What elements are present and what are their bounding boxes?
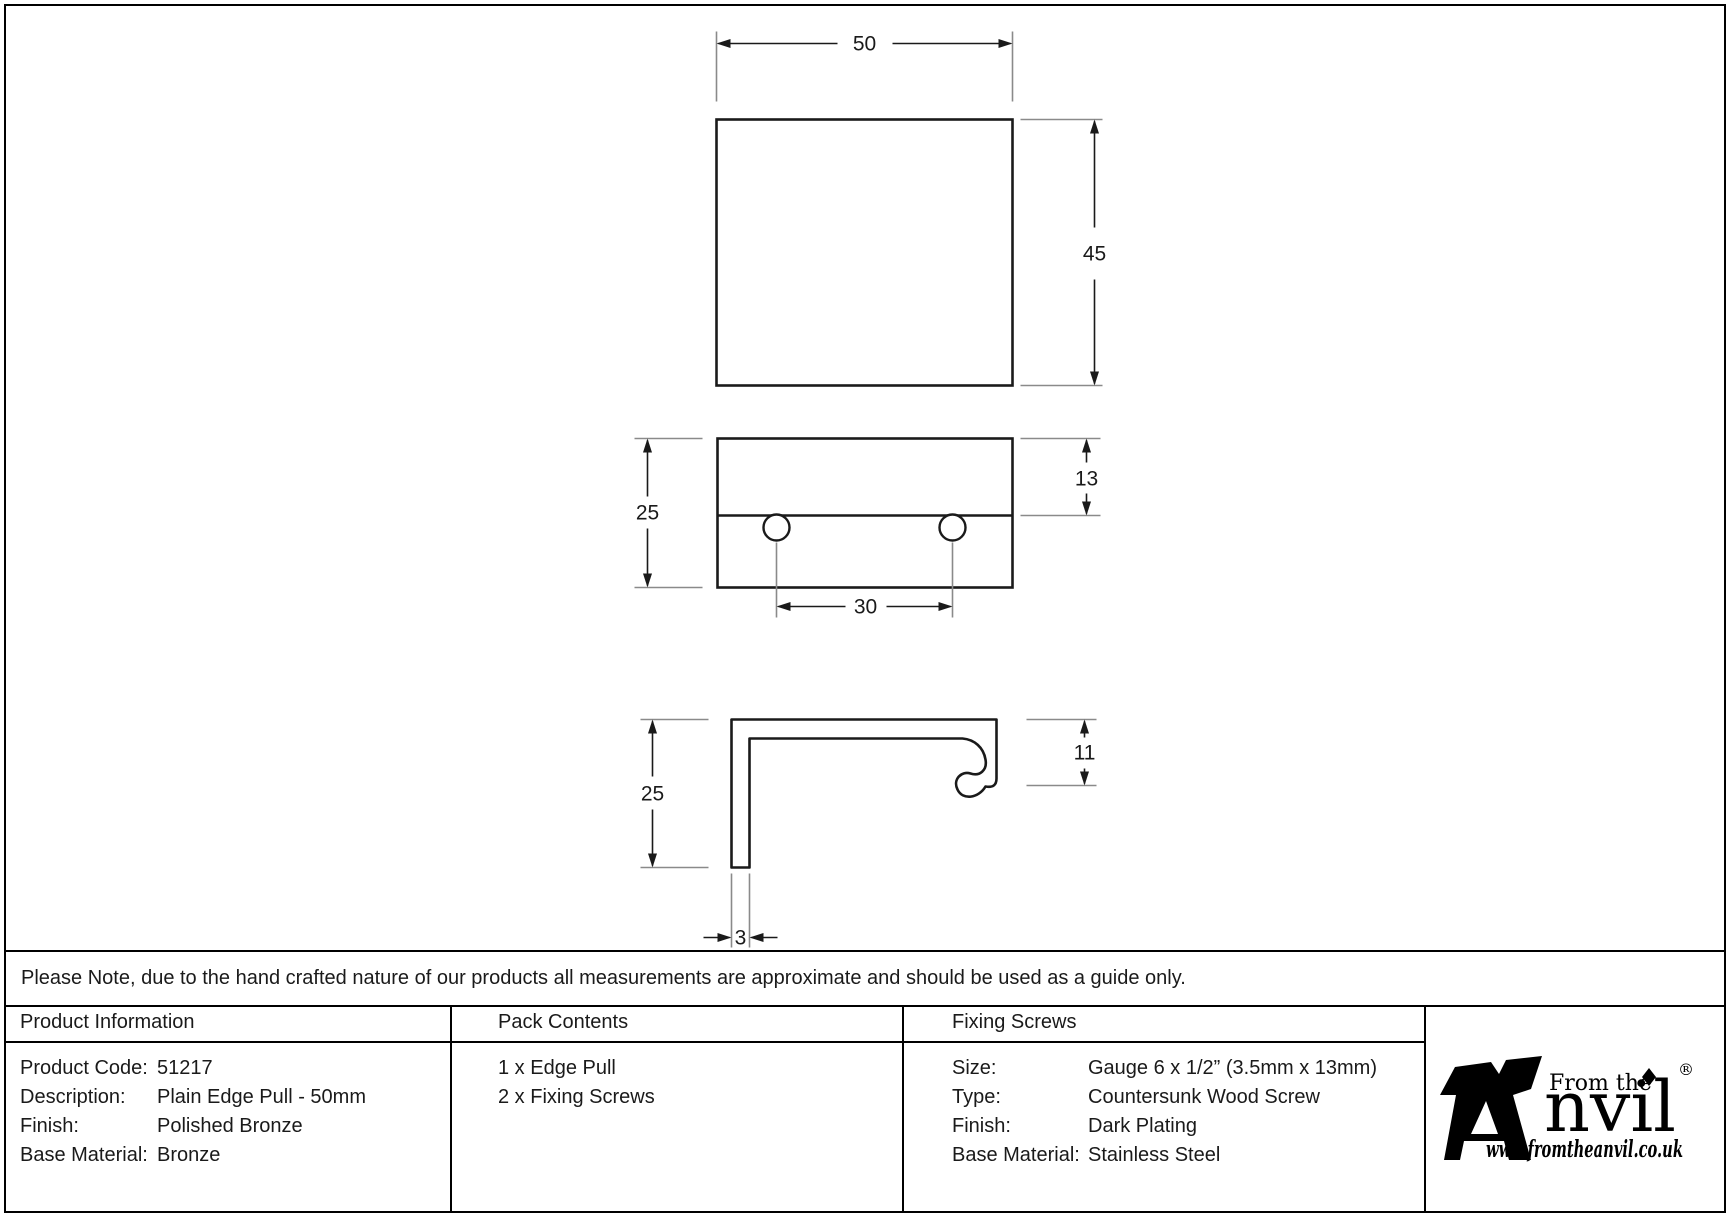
arrowhead — [718, 933, 732, 942]
table-row: Finish: Polished Bronze — [20, 1112, 450, 1141]
anvil-logo-graphic: From the nvil ® www.fromtheanvil.co.uk — [1426, 1005, 1721, 1212]
front-view-outline — [718, 439, 1013, 588]
from-the-anvil-logo: From the nvil ® www.fromtheanvil.co.uk — [1426, 1005, 1724, 1212]
table-row: Description: Plain Edge Pull - 50mm — [20, 1083, 450, 1112]
item-text: 1 x Edge Pull — [498, 1057, 616, 1080]
row-value: Plain Edge Pull - 50mm — [157, 1086, 366, 1109]
arrowhead — [648, 854, 657, 868]
dimension-lip-11: 11 — [1027, 720, 1097, 786]
row-label: Description: — [20, 1086, 157, 1109]
dim-label-25: 25 — [636, 502, 659, 525]
arrowhead — [939, 602, 953, 611]
registered-mark: ® — [1678, 1060, 1694, 1079]
arrowhead — [777, 602, 791, 611]
product-information-body: Product Code: 51217 Description: Plain E… — [6, 1043, 450, 1170]
arrowhead — [1090, 120, 1099, 134]
row-value: Bronze — [157, 1144, 220, 1167]
dim-label-side-25: 25 — [641, 783, 664, 806]
side-view: 25 11 3 — [641, 720, 1097, 950]
table-row: Base Material: Bronze — [20, 1141, 450, 1170]
table-row: Product Code: 51217 — [20, 1054, 450, 1083]
row-value: Stainless Steel — [1088, 1144, 1220, 1167]
dimension-width-50: 50 — [717, 32, 1013, 102]
list-item: 1 x Edge Pull — [498, 1054, 902, 1083]
arrowhead — [1082, 439, 1091, 453]
dimension-height-45: 45 — [1021, 120, 1107, 386]
row-label: Finish: — [20, 1115, 157, 1138]
row-label: Base Material: — [20, 1144, 157, 1167]
header-label: Product Information — [20, 1011, 195, 1034]
row-value: Polished Bronze — [157, 1115, 303, 1138]
arrowhead — [643, 439, 652, 453]
row-value: 51217 — [157, 1057, 213, 1080]
arrowhead — [643, 574, 652, 588]
measurement-note: Please Note, due to the hand crafted nat… — [6, 950, 1724, 1007]
table-row: Type: Countersunk Wood Screw — [952, 1083, 1424, 1112]
arrowhead — [648, 720, 657, 734]
arrowhead — [999, 39, 1013, 48]
dimension-height-25: 25 — [635, 439, 703, 588]
row-label: Size: — [952, 1057, 1088, 1080]
brand-logo-cell: From the nvil ® www.fromtheanvil.co.uk — [1426, 1005, 1724, 1212]
side-profile-outline — [732, 720, 997, 868]
top-view: 50 45 — [717, 32, 1107, 386]
arrowhead — [717, 39, 731, 48]
dim-label-11: 11 — [1074, 742, 1096, 765]
screw-hole-right — [940, 515, 966, 541]
row-label: Finish: — [952, 1115, 1088, 1138]
dimension-top-section-13: 13 — [1021, 439, 1101, 516]
dim-label-45: 45 — [1083, 243, 1106, 266]
arrowhead — [1080, 720, 1089, 734]
row-label: Base Material: — [952, 1144, 1088, 1167]
header-label: Pack Contents — [498, 1011, 628, 1034]
dimension-thickness-3: 3 — [704, 874, 778, 950]
arrowhead — [1082, 502, 1091, 516]
product-information-column: Product Information Product Code: 51217 … — [6, 1005, 452, 1212]
table-row: Finish: Dark Plating — [952, 1112, 1424, 1141]
arrowhead — [1080, 772, 1089, 786]
arrowhead — [750, 933, 764, 942]
page-frame: 50 45 — [4, 4, 1726, 1213]
dimension-side-height-25: 25 — [641, 720, 709, 868]
dim-label-30: 30 — [854, 596, 877, 619]
header-label: Fixing Screws — [952, 1011, 1076, 1034]
pack-contents-header: Pack Contents — [452, 1005, 902, 1043]
logo-url-text: www.fromtheanvil.co.uk — [1486, 1136, 1683, 1163]
table-row: Size: Gauge 6 x 1/2” (3.5mm x 13mm) — [952, 1054, 1424, 1083]
row-label: Type: — [952, 1086, 1088, 1109]
fixing-screws-body: Size: Gauge 6 x 1/2” (3.5mm x 13mm) Type… — [904, 1043, 1424, 1170]
top-view-outline — [717, 120, 1013, 386]
dim-label-3: 3 — [735, 927, 747, 950]
row-value: Gauge 6 x 1/2” (3.5mm x 13mm) — [1088, 1057, 1377, 1080]
info-table: Product Information Product Code: 51217 … — [6, 1005, 1724, 1212]
front-view: 25 13 30 — [635, 439, 1101, 619]
table-row: Base Material: Stainless Steel — [952, 1141, 1424, 1170]
row-value: Countersunk Wood Screw — [1088, 1086, 1320, 1109]
row-value: Dark Plating — [1088, 1115, 1197, 1138]
dim-label-13: 13 — [1075, 468, 1098, 491]
list-item: 2 x Fixing Screws — [498, 1083, 902, 1112]
technical-drawing: 50 45 — [6, 6, 1730, 950]
product-information-header: Product Information — [6, 1005, 450, 1043]
pack-contents-body: 1 x Edge Pull 2 x Fixing Screws — [452, 1043, 902, 1112]
fixing-screws-header: Fixing Screws — [904, 1005, 1424, 1043]
row-label: Product Code: — [20, 1057, 157, 1080]
screw-hole-left — [764, 515, 790, 541]
dim-label-50: 50 — [853, 33, 876, 56]
arrowhead — [1090, 372, 1099, 386]
item-text: 2 x Fixing Screws — [498, 1086, 655, 1109]
pack-contents-column: Pack Contents 1 x Edge Pull 2 x Fixing S… — [452, 1005, 904, 1212]
fixing-screws-column: Fixing Screws Size: Gauge 6 x 1/2” (3.5m… — [904, 1005, 1426, 1212]
note-text: Please Note, due to the hand crafted nat… — [21, 967, 1186, 990]
